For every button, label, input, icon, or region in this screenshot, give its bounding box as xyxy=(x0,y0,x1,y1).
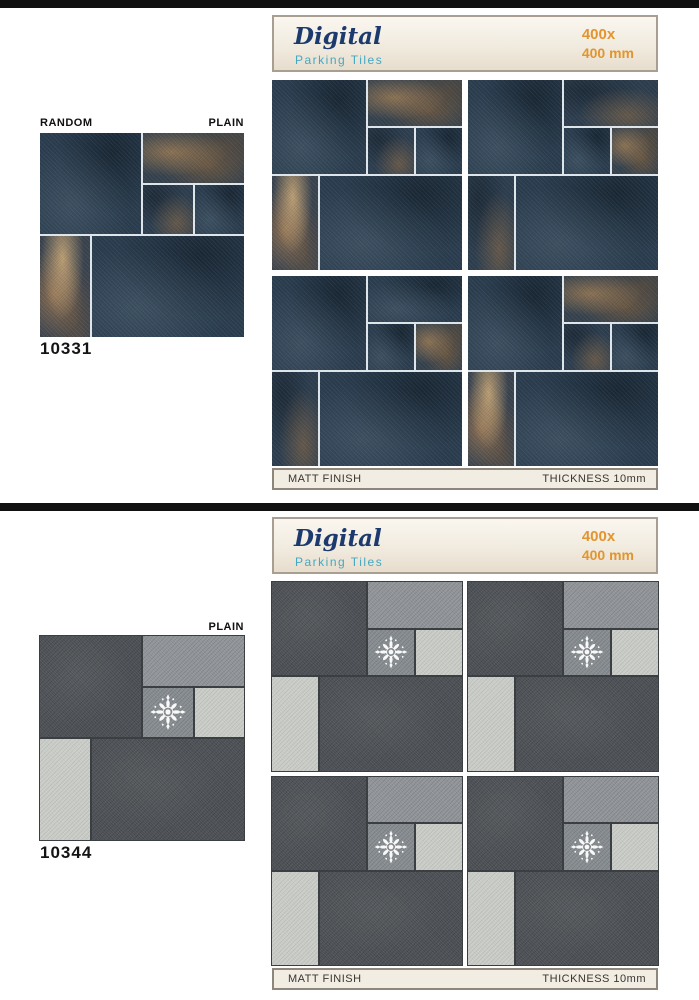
small-square-tile-2 xyxy=(612,324,658,370)
section-divider-bar xyxy=(0,503,699,511)
small-square-tile-2 xyxy=(416,324,462,370)
plain-label: PLAIN xyxy=(209,621,245,633)
big-square-tile xyxy=(272,276,366,370)
tall-rect-tile xyxy=(272,372,318,466)
small-square-tile-1 xyxy=(368,630,414,676)
tile-quadrant xyxy=(468,80,658,270)
section2-header-card: Digital Parking Tiles 400x 400 mm xyxy=(272,517,658,574)
tile-quadrant xyxy=(468,777,658,966)
section1-tile-panel xyxy=(272,80,658,466)
tile-quadrant xyxy=(272,582,462,771)
damask-ornament-icon xyxy=(374,636,408,670)
product-line-label: Parking Tiles xyxy=(295,555,383,569)
small-square-tile-2 xyxy=(612,128,658,174)
section1-spec-bar: MATT FINISH THICKNESS 10mm xyxy=(272,468,658,490)
damask-ornament-icon xyxy=(570,830,604,864)
damask-ornament-icon xyxy=(149,694,186,731)
tile-size-width: 400x xyxy=(582,528,634,546)
big-rect-tile xyxy=(320,872,462,965)
tile-size-text: 400x 400 mm xyxy=(582,528,634,564)
wide-rect-tile xyxy=(143,636,244,686)
tall-rect-tile xyxy=(272,872,318,965)
section1-layout-preview xyxy=(40,133,244,337)
tall-rect-tile xyxy=(468,372,514,466)
big-square-tile xyxy=(468,276,562,370)
damask-ornament-icon xyxy=(374,830,408,864)
section2-spec-bar: MATT FINISH THICKNESS 10mm xyxy=(272,968,658,990)
big-rect-tile xyxy=(516,176,658,270)
catalog-page: Digital Parking Tiles 400x 400 mm RANDOM… xyxy=(0,0,699,1000)
finish-label: MATT FINISH xyxy=(274,973,362,985)
tall-rect-tile xyxy=(468,872,514,965)
small-square-tile-1 xyxy=(143,688,193,738)
wide-rect-tile xyxy=(368,582,462,628)
small-square-tile-1 xyxy=(368,824,414,870)
small-square-tile-2 xyxy=(195,688,245,738)
tall-rect-tile xyxy=(272,176,318,270)
brand-logo: Digital xyxy=(294,525,382,552)
wide-rect-tile xyxy=(564,777,658,823)
small-square-tile-2 xyxy=(416,630,462,676)
big-square-tile xyxy=(468,582,562,675)
tall-rect-tile xyxy=(40,236,90,337)
small-square-tile-1 xyxy=(143,185,193,235)
small-square-tile-1 xyxy=(368,324,414,370)
big-rect-tile xyxy=(320,677,462,770)
big-rect-tile xyxy=(320,176,462,270)
tile-quadrant xyxy=(468,582,658,771)
small-square-tile-1 xyxy=(564,824,610,870)
tile-quadrant xyxy=(272,80,462,270)
tile-quadrant xyxy=(272,276,462,466)
big-square-tile xyxy=(40,636,141,737)
small-square-tile-1 xyxy=(564,324,610,370)
damask-ornament-icon xyxy=(570,636,604,670)
wide-rect-tile xyxy=(564,276,658,322)
product-line-label: Parking Tiles xyxy=(295,53,383,67)
section2-tile-panel xyxy=(272,582,658,965)
section2-layout-preview xyxy=(40,636,244,840)
small-square-tile-1 xyxy=(564,630,610,676)
section1-header-card: Digital Parking Tiles 400x 400 mm xyxy=(272,15,658,72)
tile-size-height: 400 mm xyxy=(582,44,634,62)
finish-label: MATT FINISH xyxy=(274,473,362,485)
tile-size-height: 400 mm xyxy=(582,546,634,564)
big-rect-tile xyxy=(320,372,462,466)
big-square-tile xyxy=(468,777,562,870)
big-square-tile xyxy=(468,80,562,174)
wide-rect-tile xyxy=(564,80,658,126)
section1-pattern-labels: RANDOM PLAIN xyxy=(40,117,244,129)
big-square-tile xyxy=(272,777,366,870)
tile-size-width: 400x xyxy=(582,26,634,44)
wide-rect-tile xyxy=(368,777,462,823)
wide-rect-tile xyxy=(143,133,244,183)
big-rect-tile xyxy=(516,372,658,466)
tall-rect-tile xyxy=(468,176,514,270)
small-square-tile-2 xyxy=(416,128,462,174)
tile-quadrant xyxy=(468,276,658,466)
tall-rect-tile xyxy=(468,677,514,770)
tile-size-text: 400x 400 mm xyxy=(582,26,634,62)
small-square-tile-2 xyxy=(416,824,462,870)
wide-rect-tile xyxy=(564,582,658,628)
wide-rect-tile xyxy=(368,80,462,126)
wide-rect-tile xyxy=(368,276,462,322)
small-square-tile-2 xyxy=(612,824,658,870)
section2-pattern-labels: PLAIN xyxy=(40,621,244,633)
big-square-tile xyxy=(272,582,366,675)
small-square-tile-2 xyxy=(195,185,245,235)
product-code: 10331 xyxy=(40,339,92,359)
big-rect-tile xyxy=(516,677,658,770)
thickness-label: THICKNESS 10mm xyxy=(542,973,656,985)
top-divider-bar xyxy=(0,0,699,8)
plain-label: PLAIN xyxy=(209,117,245,129)
big-rect-tile xyxy=(92,739,245,840)
thickness-label: THICKNESS 10mm xyxy=(542,473,656,485)
product-code: 10344 xyxy=(40,843,92,863)
small-square-tile-2 xyxy=(612,630,658,676)
tall-rect-tile xyxy=(40,739,90,840)
random-label: RANDOM xyxy=(40,117,93,129)
small-square-tile-1 xyxy=(564,128,610,174)
big-square-tile xyxy=(272,80,366,174)
tall-rect-tile xyxy=(272,677,318,770)
big-square-tile xyxy=(40,133,141,234)
small-square-tile-1 xyxy=(368,128,414,174)
brand-logo: Digital xyxy=(294,23,382,50)
big-rect-tile xyxy=(92,236,245,337)
tile-quadrant xyxy=(272,777,462,966)
big-rect-tile xyxy=(516,872,658,965)
